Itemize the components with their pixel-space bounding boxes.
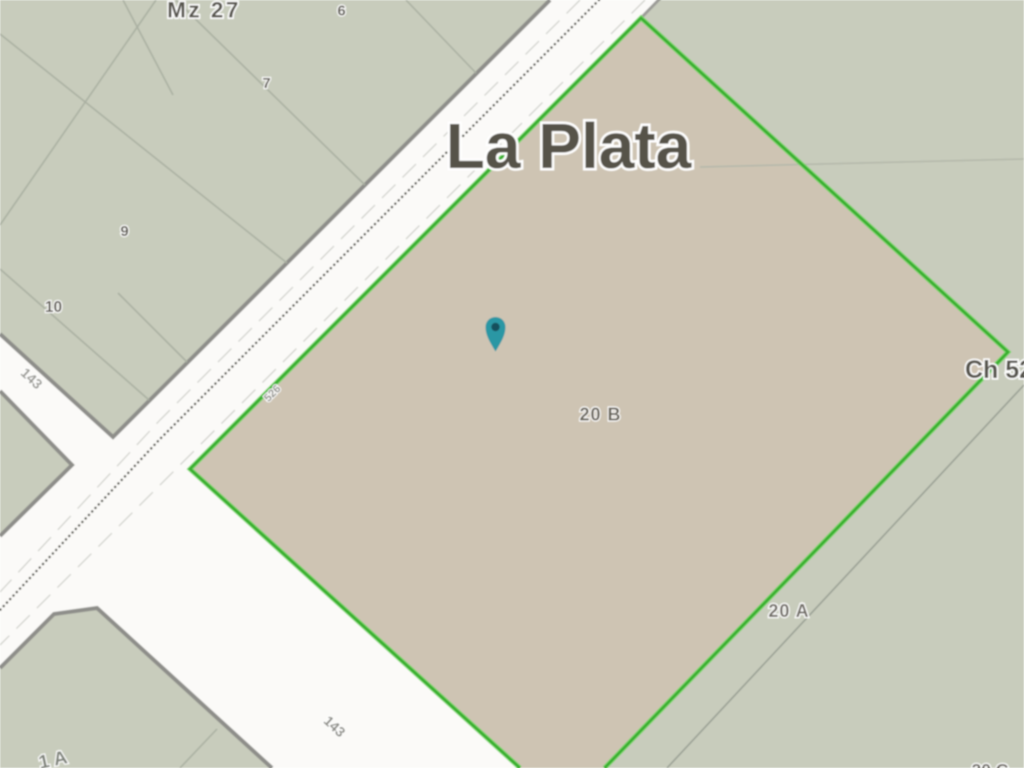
svg-text:6: 6 bbox=[337, 3, 345, 20]
svg-text:La Plata: La Plata bbox=[446, 110, 692, 182]
svg-text:Mz 27: Mz 27 bbox=[167, 0, 241, 23]
svg-text:Ch 52: Ch 52 bbox=[965, 356, 1024, 384]
svg-text:9: 9 bbox=[120, 223, 128, 240]
svg-text:20 A: 20 A bbox=[768, 601, 809, 621]
svg-text:20 B: 20 B bbox=[579, 405, 621, 425]
svg-text:20 C: 20 C bbox=[972, 760, 1009, 768]
svg-text:10: 10 bbox=[45, 299, 62, 316]
svg-text:7: 7 bbox=[262, 75, 270, 92]
